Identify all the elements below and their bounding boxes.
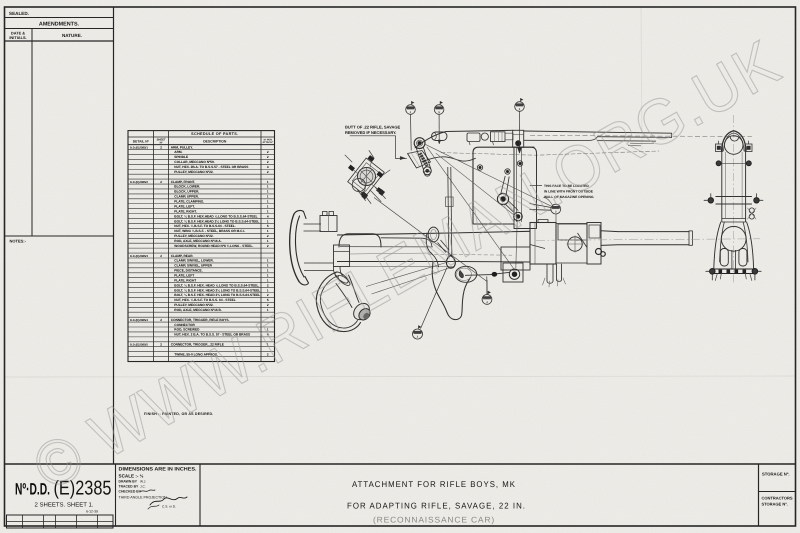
svg-text:CONNECTOR, TRIGGER, RIFLE BOYS: CONNECTOR, TRIGGER, RIFLE BOYS. (171, 318, 230, 322)
svg-text:PLATE, RIGHT.: PLATE, RIGHT. (174, 209, 197, 213)
svg-text:D.D.(E)2385/2: D.D.(E)2385/2 (130, 180, 148, 184)
svg-text:1: 1 (267, 288, 269, 292)
svg-text:ROD, SCREWED: ROD, SCREWED (174, 328, 200, 332)
svg-text:SCALE :- ½: SCALE :- ½ (119, 473, 144, 478)
svg-text:CLAMP, FRONT.: CLAMP, FRONT. (171, 180, 195, 184)
svg-text:DESCRIPTION: DESCRIPTION (203, 140, 227, 144)
svg-text:1: 1 (267, 185, 269, 189)
svg-text:SCHEDULE OF PARTS.: SCHEDULE OF PARTS. (191, 132, 238, 136)
svg-text:ROD, AXLE, MECCANO Nº16 B.: ROD, AXLE, MECCANO Nº16 B. (174, 308, 222, 312)
svg-text:CONNECTOR: CONNECTOR (174, 323, 195, 327)
svg-text:ARM.: ARM. (174, 150, 182, 154)
svg-text:BOLT, ¼ B.S.F. HEX. HEAD 2¼ LO: BOLT, ¼ B.S.F. HEX. HEAD 2¼ LONG TO B.S.… (174, 288, 260, 292)
svg-text:PLATE, LEFT.: PLATE, LEFT. (174, 204, 195, 208)
svg-text:ATTACHᵀ: ATTACHᵀ (262, 141, 273, 144)
svg-text:CLAMP, SWIVEL, LOWER.: CLAMP, SWIVEL, LOWER. (174, 259, 214, 263)
svg-text:4: 4 (267, 165, 269, 169)
svg-text:2: 2 (267, 160, 269, 164)
svg-text:BOLT, ¼ B.S.F. HEX. HEAD ⅞ LON: BOLT, ¼ B.S.F. HEX. HEAD ⅞ LONG TO B.S.S… (174, 283, 259, 287)
svg-text:Nº: Nº (160, 142, 163, 145)
svg-text:1: 1 (267, 239, 269, 243)
svg-text:2: 2 (267, 155, 269, 159)
svg-text:2: 2 (267, 283, 269, 287)
svg-text:PULLEY, MECCANO Nº22.: PULLEY, MECCANO Nº22. (174, 234, 213, 238)
svg-text:SPINDLE: SPINDLE (174, 155, 188, 159)
svg-text:ARM, PULLEY.: ARM, PULLEY. (171, 145, 193, 149)
svg-text:1: 1 (267, 269, 269, 273)
svg-text:CLAMP, REAR.: CLAMP, REAR. (171, 254, 194, 258)
svg-text:REMOVED IF NECESSARY.: REMOVED IF NECESSARY. (345, 130, 396, 135)
svg-text:THIRD ANGLE PROJECTION.: THIRD ANGLE PROJECTION. (119, 495, 168, 499)
svg-text:DIMENSIONS ARE IN INCHES.: DIMENSIONS ARE IN INCHES. (119, 467, 198, 473)
svg-text:BOLT, ¼ B.S.F. HEX.HEAD ⅞ LONG: BOLT, ¼ B.S.F. HEX.HEAD ⅞ LONG TO B.S.S.… (174, 214, 257, 218)
svg-text:BLOCK, UPPER.: BLOCK, UPPER. (174, 190, 199, 194)
svg-text:TRACED BY: TRACED BY (119, 485, 140, 489)
svg-text:2: 2 (267, 293, 269, 297)
svg-text:PULLEY, MECCANO Nº22.: PULLEY, MECCANO Nº22. (174, 170, 213, 174)
svg-text:BLOCK, LOWER.: BLOCK, LOWER. (174, 185, 200, 189)
svg-text:FOR ADAPTING RIFLE, SAVAGE,: FOR ADAPTING RIFLE, SAVAGE, 22 IN. (347, 501, 526, 511)
svg-text:SEALED.: SEALED. (9, 11, 29, 16)
svg-text:DRAWN BY: DRAWN BY (119, 479, 138, 483)
svg-text:INITIALS.: INITIALS. (9, 35, 26, 40)
svg-text:CLAMP, UPPER.: CLAMP, UPPER. (174, 195, 199, 199)
svg-text:NOTES:-: NOTES:- (10, 239, 27, 244)
svg-text:1: 1 (267, 219, 269, 223)
svg-text:STORAGE Nº.: STORAGE Nº. (762, 472, 790, 477)
svg-text:AMENDMENTS.: AMENDMENTS. (39, 22, 80, 28)
svg-text:1: 1 (267, 264, 269, 268)
svg-text:NUT, HEX. 2B.A. TO B.S.S.57 -: NUT, HEX. 2B.A. TO B.S.S.57 - STEEL OR B… (174, 165, 248, 169)
svg-text:PLATE, RIGHT: PLATE, RIGHT (174, 278, 196, 282)
svg-text:NUT, HEX. ¼ B.S.F. TO B.S.S.64: NUT, HEX. ¼ B.S.F. TO B.S.S.64 - STEEL. (174, 224, 236, 228)
svg-text:BOLT, ¼ B.S.F. HEX. HEAD 2¾ LO: BOLT, ¼ B.S.F. HEX. HEAD 2¾ LONG TO B.S.… (174, 293, 260, 297)
svg-text:ROD, AXLE, MECCANO Nº16 A.: ROD, AXLE, MECCANO Nº16 A. (174, 239, 221, 243)
svg-text:WOODSCREW, ROUND HEAD Nº8 ¾ LO: WOODSCREW, ROUND HEAD Nº8 ¾ LONG - STEEL… (174, 244, 253, 248)
svg-text:ATTACHMENT FOR RIFLE BOYS,: ATTACHMENT FOR RIFLE BOYS, MK (352, 479, 516, 489)
svg-text:J.C.: J.C. (140, 485, 146, 489)
svg-text:C.S. or D.: C.S. or D. (162, 505, 176, 509)
svg-text:1: 1 (267, 259, 269, 263)
svg-text:1: 1 (267, 195, 269, 199)
svg-text:PLATE, CLAMPING.: PLATE, CLAMPING. (174, 200, 204, 204)
svg-text:CHECKED BY: CHECKED BY (119, 490, 142, 494)
svg-text:2: 2 (267, 234, 269, 238)
svg-text:2: 2 (160, 254, 162, 258)
svg-text:COLLAR, MECCANO Nº59.: COLLAR, MECCANO Nº59. (174, 160, 214, 164)
svg-text:D.D.(E)2385/1: D.D.(E)2385/1 (130, 145, 148, 149)
svg-text:D.D.(E)2385/5: D.D.(E)2385/5 (130, 343, 148, 347)
svg-text:1: 1 (267, 190, 269, 194)
svg-text:1: 1 (267, 209, 269, 213)
svg-text:CONTRACTORS: CONTRACTORS (762, 496, 793, 501)
svg-text:PLATE, LEFT: PLATE, LEFT (174, 273, 194, 277)
svg-text:D.D.(E)2385/3: D.D.(E)2385/3 (130, 254, 148, 258)
svg-text:NATURE.: NATURE. (62, 33, 82, 38)
svg-text:BOLT, ¼ B.S.F. HEX.HEAD 2¼ LON: BOLT, ¼ B.S.F. HEX.HEAD 2¼ LONG TO B.S.S… (174, 219, 259, 223)
svg-text:W.J.: W.J. (140, 479, 146, 483)
svg-text:1: 1 (267, 229, 269, 233)
svg-text:NUT, WING ¼ B.S.F. - STEEL, BR: NUT, WING ¼ B.S.F. - STEEL, BRASS OR M.C… (174, 229, 245, 233)
svg-text:1: 1 (267, 278, 269, 282)
svg-text:(RECONNAISSANCE CAR): (RECONNAISSANCE CAR) (373, 516, 495, 525)
svg-text:5: 5 (267, 224, 269, 228)
svg-text:1: 1 (267, 273, 269, 277)
svg-text:CLAMP, SWIVEL, UPPER: CLAMP, SWIVEL, UPPER (174, 264, 212, 268)
svg-text:6-12-39: 6-12-39 (86, 510, 98, 514)
svg-text:4: 4 (267, 214, 269, 218)
svg-text:2: 2 (160, 318, 162, 322)
svg-text:1: 1 (267, 200, 269, 204)
svg-text:2: 2 (267, 170, 269, 174)
svg-text:BUTT OF .22 RIFLE, SAVAGE: BUTT OF .22 RIFLE, SAVAGE (345, 124, 401, 129)
svg-text:PULLEY, MECCANO Nº22.: PULLEY, MECCANO Nº22. (174, 303, 213, 307)
svg-text:STORAGE Nº.: STORAGE Nº. (762, 502, 788, 507)
svg-text:2: 2 (160, 343, 162, 347)
svg-text:DETAIL Nº: DETAIL Nº (133, 139, 150, 143)
svg-text:PIECE, DISTANCE.: PIECE, DISTANCE. (174, 269, 202, 273)
svg-text:2 SHEETS. SHEET 1.: 2 SHEETS. SHEET 1. (35, 502, 94, 509)
svg-text:2: 2 (267, 244, 269, 248)
svg-text:1: 1 (267, 204, 269, 208)
svg-text:2: 2 (160, 180, 162, 184)
svg-text:NUT, HEX. ¼ B.S.F. TO B.S.S. 6: NUT, HEX. ¼ B.S.F. TO B.S.S. 64 - STEEL (174, 298, 235, 302)
svg-text:2: 2 (160, 145, 162, 149)
svg-text:D.D.(E)2385/4: D.D.(E)2385/4 (130, 318, 148, 322)
svg-text:2: 2 (267, 150, 269, 154)
svg-text:1: 1 (267, 180, 269, 184)
